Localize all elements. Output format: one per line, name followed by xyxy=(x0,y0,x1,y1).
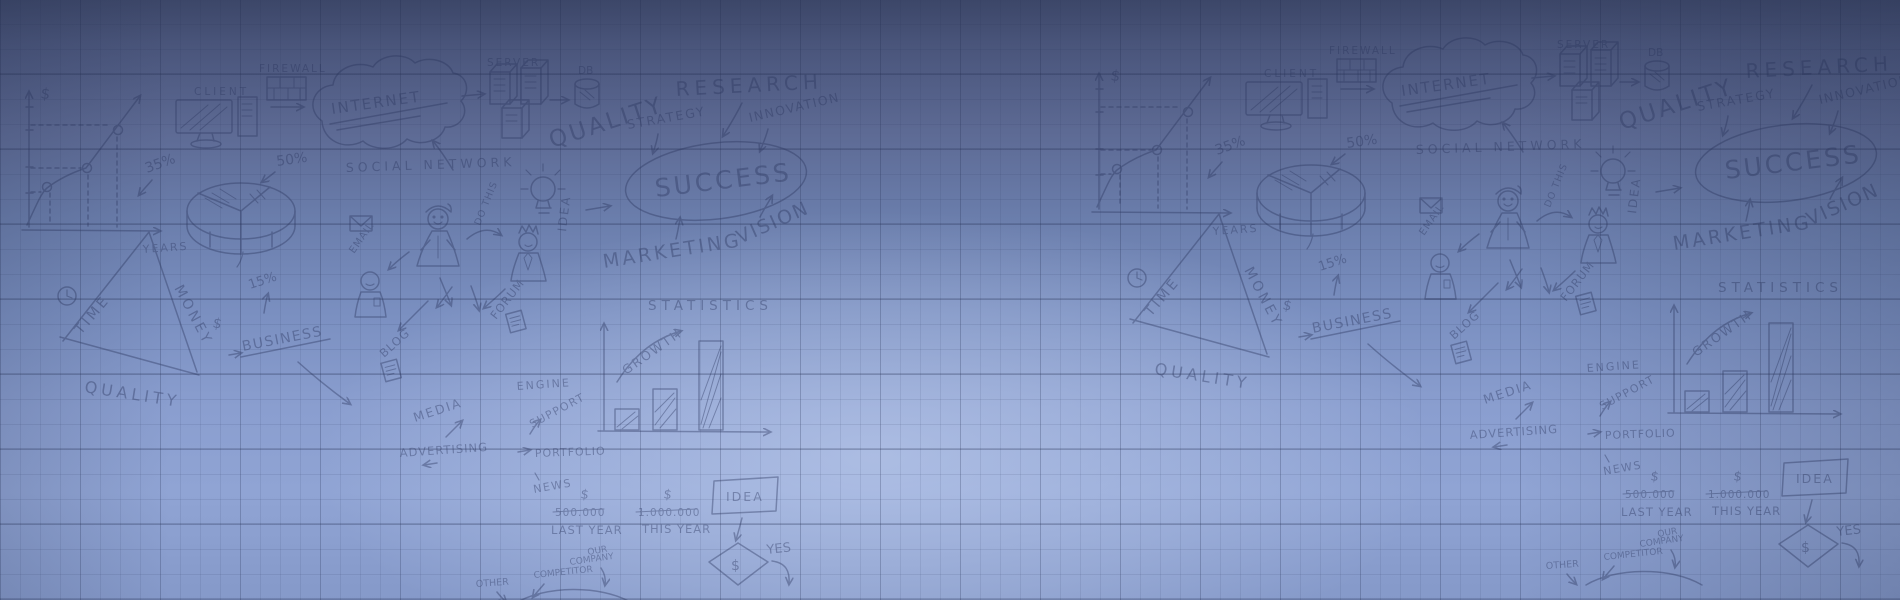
doodle-tile-right xyxy=(1092,38,1900,585)
doodle-pattern: $ YEARS CLIENT FIREWALL xyxy=(0,0,1900,600)
doodle-banner: $ YEARS CLIENT FIREWALL xyxy=(0,0,1900,600)
doodle-tile-left xyxy=(22,56,841,600)
